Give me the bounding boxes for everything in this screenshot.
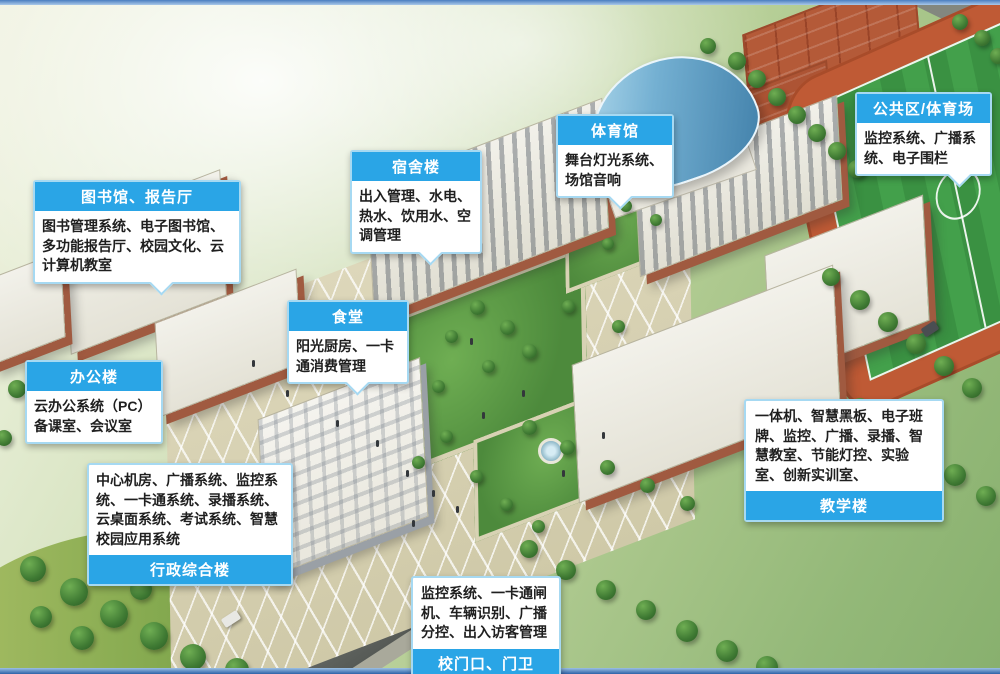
tree [636, 600, 656, 620]
callout-library-title: 图书馆、报告厅 [35, 182, 239, 211]
tree [560, 440, 575, 455]
tree [850, 290, 870, 310]
tree [768, 88, 786, 106]
tree [974, 30, 990, 46]
callout-library-body: 图书管理系统、电子图书馆、多功能报告厅、校园文化、云计算机教室 [35, 211, 239, 282]
tree [60, 578, 88, 606]
callout-office-building-title: 办公楼 [27, 362, 161, 391]
callout-admin-complex: 中心机房、广播系统、监控系统、一卡通系统、录播系统、云桌面系统、考试系统、智慧校… [87, 463, 293, 586]
tree [522, 344, 537, 359]
callout-school-gate-title: 校门口、门卫 [413, 649, 559, 674]
tree [20, 556, 46, 582]
tree [788, 106, 806, 124]
pedestrian [336, 420, 339, 427]
callout-public-stadium-body: 监控系统、广播系统、电子围栏 [857, 123, 990, 174]
tree [716, 640, 738, 662]
callout-teaching-building-body: 一体机、智慧黑板、电子班牌、监控、广播、录播、智慧教室、节能灯控、实验室、创新实… [746, 401, 942, 491]
tree [482, 360, 495, 373]
tree [808, 124, 826, 142]
pedestrian [376, 440, 379, 447]
pedestrian [522, 390, 525, 397]
callout-office-building: 办公楼 云办公系统（PC）备课室、会议室 [25, 360, 163, 444]
pedestrian [432, 490, 435, 497]
tree [562, 300, 575, 313]
callout-teaching-building-title: 教学楼 [746, 491, 942, 520]
pedestrian [602, 432, 605, 439]
pedestrian [456, 506, 459, 513]
tree [180, 644, 206, 670]
callout-library: 图书馆、报告厅 图书管理系统、电子图书馆、多功能报告厅、校园文化、云计算机教室 [33, 180, 241, 284]
tree [700, 38, 716, 54]
pedestrian [562, 470, 565, 477]
tree [990, 48, 1000, 64]
tree [596, 580, 616, 600]
tree [532, 520, 545, 533]
tree [445, 330, 458, 343]
tree [612, 320, 625, 333]
tree [470, 470, 483, 483]
tree [952, 14, 968, 30]
tree [680, 496, 695, 511]
pedestrian [470, 338, 473, 345]
callout-canteen: 食堂 阳光厨房、一卡通消费管理 [287, 300, 409, 384]
callout-dormitory-body: 出入管理、水电、热水、饮用水、空调管理 [352, 181, 480, 252]
callout-dormitory: 宿舍楼 出入管理、水电、热水、饮用水、空调管理 [350, 150, 482, 254]
tree [640, 478, 655, 493]
tree [100, 600, 128, 628]
tree [906, 334, 926, 354]
tree [944, 464, 966, 486]
pedestrian [252, 360, 255, 367]
callout-admin-complex-title: 行政综合楼 [89, 555, 291, 584]
tree [748, 70, 766, 88]
callout-admin-complex-body: 中心机房、广播系统、监控系统、一卡通系统、录播系统、云桌面系统、考试系统、智慧校… [89, 465, 291, 555]
tree [30, 606, 52, 628]
callout-canteen-title: 食堂 [289, 302, 407, 331]
top-edge-strip [0, 0, 1000, 5]
tree [828, 142, 846, 160]
pedestrian [482, 412, 485, 419]
callout-canteen-body: 阳光厨房、一卡通消费管理 [289, 331, 407, 382]
tree [600, 460, 615, 475]
tree [728, 52, 746, 70]
callout-public-stadium-title: 公共区/体育场 [857, 94, 990, 123]
pedestrian [286, 390, 289, 397]
callout-gymnasium-body: 舞台灯光系统、场馆音响 [558, 145, 672, 196]
tree [412, 456, 425, 469]
tree [878, 312, 898, 332]
tree [470, 300, 485, 315]
pedestrian [406, 470, 409, 477]
tree [500, 498, 513, 511]
tree [976, 486, 996, 506]
tree [602, 238, 614, 250]
tree [70, 626, 94, 650]
tree [650, 214, 662, 226]
tree [432, 380, 445, 393]
callout-school-gate-body: 监控系统、一卡通闸机、车辆识别、广播分控、出入访客管理 [413, 578, 559, 649]
callout-gymnasium: 体育馆 舞台灯光系统、场馆音响 [556, 114, 674, 198]
tree [520, 540, 538, 558]
tree [934, 356, 954, 376]
tree [676, 620, 698, 642]
callout-dormitory-title: 宿舍楼 [352, 152, 480, 181]
callout-office-building-body: 云办公系统（PC）备课室、会议室 [27, 391, 161, 442]
smart-campus-aerial-diagram: 图书馆、报告厅 图书管理系统、电子图书馆、多功能报告厅、校园文化、云计算机教室 … [0, 0, 1000, 674]
callout-school-gate: 监控系统、一卡通闸机、车辆识别、广播分控、出入访客管理 校门口、门卫 [411, 576, 561, 674]
callout-gymnasium-title: 体育馆 [558, 116, 672, 145]
tree [822, 268, 840, 286]
tree [522, 420, 537, 435]
tree [8, 380, 26, 398]
tree [140, 622, 168, 650]
pedestrian [412, 520, 415, 527]
tree [440, 430, 453, 443]
callout-teaching-building: 一体机、智慧黑板、电子班牌、监控、广播、录播、智慧教室、节能灯控、实验室、创新实… [744, 399, 944, 522]
tree [962, 378, 982, 398]
tree [500, 320, 515, 335]
callout-public-stadium: 公共区/体育场 监控系统、广播系统、电子围栏 [855, 92, 992, 176]
